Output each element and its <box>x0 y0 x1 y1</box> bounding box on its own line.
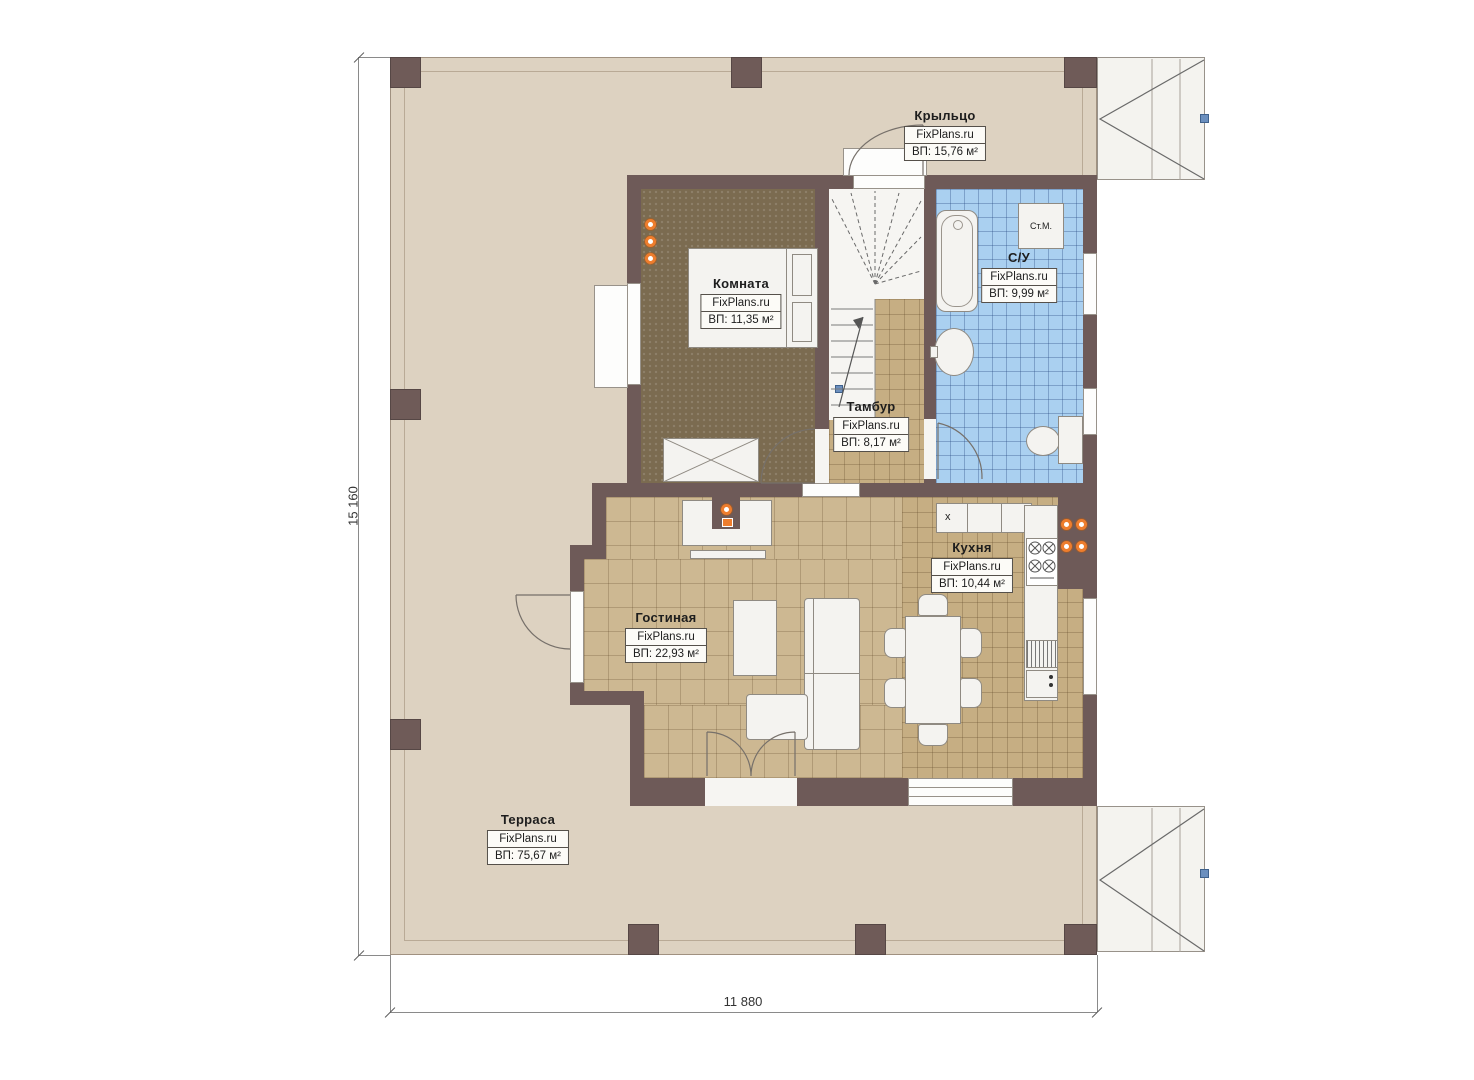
pillow <box>792 254 812 296</box>
washing-machine: Ст.М. <box>1018 203 1064 249</box>
wardrobe <box>663 438 759 482</box>
toilet <box>1026 426 1060 456</box>
bed-fold-line <box>786 249 787 347</box>
kitchen-window <box>1083 598 1097 695</box>
stove <box>1026 538 1058 586</box>
counter-divider <box>967 504 968 532</box>
fixplans-watermark: FixPlans.ru <box>982 269 1056 286</box>
column <box>731 57 762 88</box>
dimension-extension <box>358 955 390 956</box>
room-area: ВП: 9,99 м² <box>982 286 1056 302</box>
column <box>628 924 659 955</box>
room-name: С/У <box>981 250 1057 265</box>
step-marker-bottom <box>1200 869 1209 878</box>
room-label-bedroom: Комната FixPlans.ru ВП: 11,35 м² <box>700 276 781 329</box>
room-label-living: Гостиная FixPlans.ru ВП: 22,93 м² <box>625 610 707 663</box>
fixplans-watermark: FixPlans.ru <box>626 629 706 646</box>
bedroom-window <box>627 283 641 385</box>
column <box>390 719 421 750</box>
sink-tap <box>930 346 938 358</box>
step-marker-top <box>1200 114 1209 123</box>
coffee-table <box>733 600 777 676</box>
column <box>855 924 886 955</box>
room-area: ВП: 8,17 м² <box>834 435 908 451</box>
wall-light <box>1076 541 1087 552</box>
dining-chair <box>918 724 948 746</box>
appliance-knob <box>1049 675 1053 679</box>
wall-segment <box>1083 189 1097 483</box>
vestibule-passage <box>802 483 860 497</box>
column <box>1064 57 1097 88</box>
fixplans-watermark: FixPlans.ru <box>488 831 568 848</box>
dimension-height-label: 15 160 <box>345 486 360 526</box>
ceiling-light <box>645 236 656 247</box>
room-label-bathroom: С/У FixPlans.ru ВП: 9,99 м² <box>981 250 1057 303</box>
bedroom-door-arc <box>757 427 817 485</box>
room-area: ВП: 75,67 м² <box>488 848 568 864</box>
dining-chair <box>960 628 982 658</box>
wall-segment <box>570 691 644 705</box>
bathroom-window <box>1083 253 1097 315</box>
wall-segment <box>570 545 606 559</box>
exterior-steps-bottom <box>1097 806 1205 952</box>
sofa-cushion-line <box>805 673 859 674</box>
fixplans-watermark: FixPlans.ru <box>834 418 908 435</box>
dimension-extension <box>1097 955 1098 1012</box>
column <box>1064 924 1097 955</box>
wall-light <box>1061 519 1072 530</box>
room-name: Терраса <box>487 812 569 827</box>
kitchen-sink-marker: x <box>945 511 951 523</box>
counter-divider <box>1001 504 1002 532</box>
dimension-width-label: 11 880 <box>724 994 763 1009</box>
dimension-extension <box>358 57 390 58</box>
window-planter <box>594 285 628 388</box>
bathroom-sink <box>934 328 974 376</box>
room-name: Гостиная <box>625 610 707 625</box>
kitchen-counter-top: x <box>936 503 1032 533</box>
living-window <box>908 778 1013 806</box>
dining-chair <box>918 594 948 616</box>
sofa-back-line <box>813 599 814 749</box>
fixplans-watermark: FixPlans.ru <box>905 127 985 144</box>
fireplace-icon <box>722 518 733 527</box>
room-label-terrace: Терраса FixPlans.ru ВП: 75,67 м² <box>487 812 569 865</box>
room-area: ВП: 10,44 м² <box>932 576 1012 592</box>
bathroom-door-opening <box>924 419 936 479</box>
bedroom-door-opening <box>815 429 829 483</box>
kitchen-appliance <box>1026 670 1058 698</box>
ceiling-light <box>645 253 656 264</box>
wall-light <box>1076 519 1087 530</box>
fixplans-watermark: FixPlans.ru <box>701 295 780 312</box>
room-name: Комната <box>700 276 781 291</box>
column <box>390 389 421 420</box>
column <box>390 57 421 88</box>
tv-shelf <box>690 550 766 559</box>
room-name: Кухня <box>931 540 1013 555</box>
exterior-steps-top <box>1097 57 1205 180</box>
appliance-knob <box>1049 683 1053 687</box>
room-area: ВП: 15,76 м² <box>905 144 985 160</box>
dining-chair <box>884 678 906 708</box>
room-name: Тамбур <box>833 399 909 414</box>
pillow <box>792 302 812 342</box>
bathroom-door-arc <box>936 421 986 481</box>
fixplans-watermark: FixPlans.ru <box>932 559 1012 576</box>
terrace-door-opening <box>570 591 584 683</box>
room-area: ВП: 11,35 м² <box>701 312 780 328</box>
french-door-arcs <box>705 730 797 778</box>
room-area: ВП: 22,93 м² <box>626 646 706 662</box>
front-door-opening <box>853 175 925 189</box>
terrace-door-arc <box>514 593 572 651</box>
bathtub-drain <box>953 220 963 230</box>
bathroom-window <box>1083 388 1097 435</box>
ceiling-light <box>645 219 656 230</box>
dining-chair <box>884 628 906 658</box>
wall-light <box>1061 541 1072 552</box>
fireplace-light <box>721 504 732 515</box>
french-door-opening <box>705 778 797 806</box>
dining-table <box>905 616 961 724</box>
dimension-extension <box>390 955 391 1012</box>
winder-staircase <box>829 189 924 420</box>
dimension-line-horizontal <box>390 1012 1097 1013</box>
room-label-kitchen: Кухня FixPlans.ru ВП: 10,44 м² <box>931 540 1013 593</box>
toilet-cistern <box>1058 416 1083 464</box>
room-label-porch: Крыльцо FixPlans.ru ВП: 15,76 м² <box>904 108 986 161</box>
kitchen-sink-rack <box>1026 640 1058 668</box>
room-label-vestibule: Тамбур FixPlans.ru ВП: 8,17 м² <box>833 399 909 452</box>
sofa <box>804 598 860 750</box>
dining-chair <box>960 678 982 708</box>
room-name: Крыльцо <box>904 108 986 123</box>
floor-plan: Ст.М. x Крыльцо Fix <box>0 0 1474 1080</box>
washing-machine-label: Ст.М. <box>1030 221 1052 231</box>
wall-segment <box>630 778 1097 806</box>
